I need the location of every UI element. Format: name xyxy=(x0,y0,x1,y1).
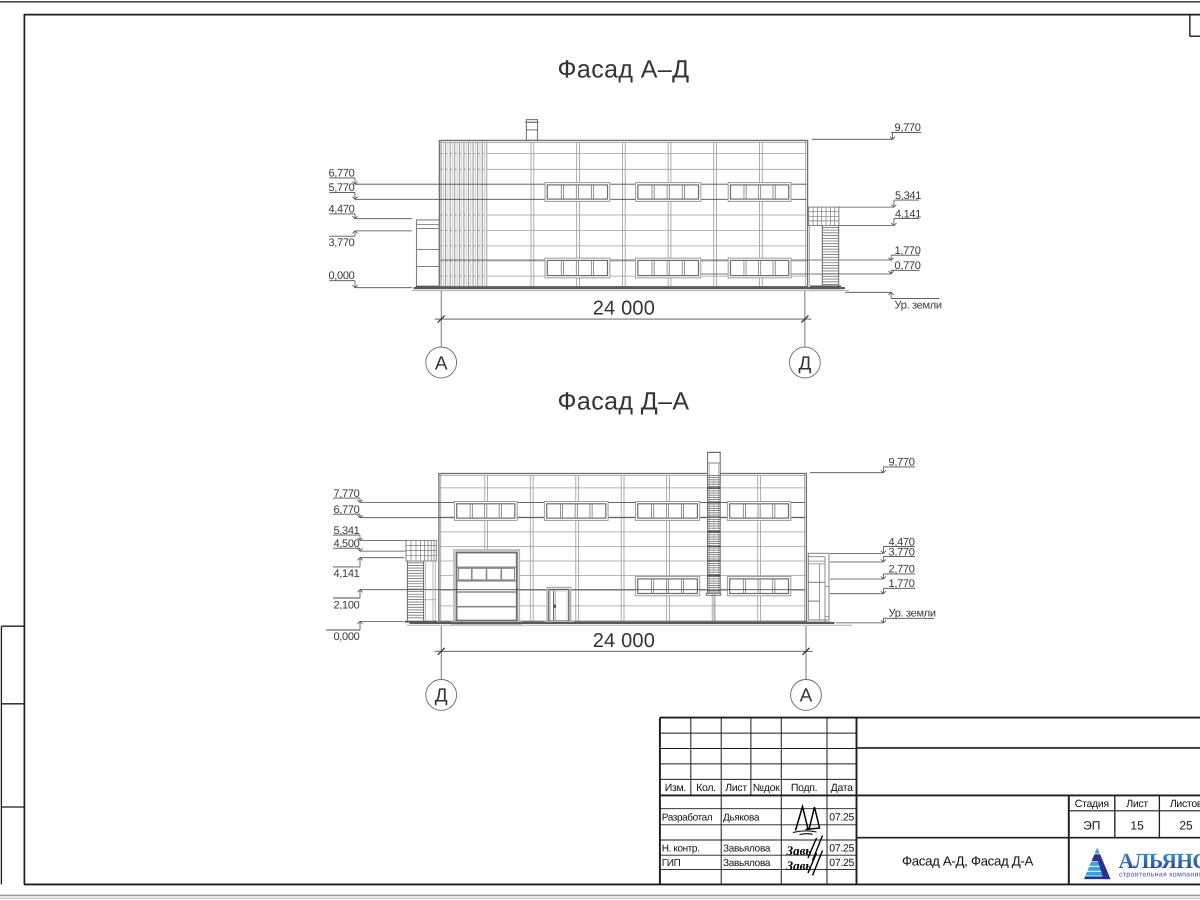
svg-text:07.25: 07.25 xyxy=(829,812,854,824)
svg-text:0,000: 0,000 xyxy=(333,631,359,643)
svg-text:Фасад А–Д: Фасад А–Д xyxy=(558,55,690,83)
svg-text:строительная компания: строительная компания xyxy=(1119,871,1200,878)
svg-text:А: А xyxy=(800,686,813,707)
svg-text:ЭП: ЭП xyxy=(1083,818,1100,832)
svg-text:24 000: 24 000 xyxy=(593,298,655,320)
svg-text:Ур. земли: Ур. земли xyxy=(895,300,942,312)
svg-text:Завьялова: Завьялова xyxy=(723,858,771,869)
svg-text:Лист: Лист xyxy=(725,782,747,794)
svg-text:Подп.: Подп. xyxy=(791,782,817,794)
svg-text:Завьялова: Завьялова xyxy=(723,843,771,854)
svg-text:2,100: 2,100 xyxy=(333,599,359,611)
svg-text:Д: Д xyxy=(798,353,811,374)
svg-text:Д: Д xyxy=(435,686,448,707)
svg-text:Ур. земли: Ур. земли xyxy=(889,608,936,620)
svg-text:Фасад Д–А: Фасад Д–А xyxy=(558,387,690,415)
svg-text:Лист: Лист xyxy=(1126,798,1148,810)
svg-text:№док: №док xyxy=(753,782,780,794)
svg-text:07.25: 07.25 xyxy=(829,842,854,854)
svg-text:АЛЬЯНС: АЛЬЯНС xyxy=(1119,849,1200,873)
svg-text:Дьякова: Дьякова xyxy=(723,813,760,824)
svg-text:25: 25 xyxy=(1179,818,1193,832)
svg-text:А: А xyxy=(435,353,448,374)
svg-text:15: 15 xyxy=(1130,818,1144,832)
svg-text:4,141: 4,141 xyxy=(333,568,359,580)
svg-text:Листов: Листов xyxy=(1170,798,1200,810)
svg-text:Завь: Завь xyxy=(786,858,812,873)
svg-text:Стадия: Стадия xyxy=(1075,798,1109,810)
svg-text:Завь: Завь xyxy=(786,843,812,858)
svg-text:Изм.: Изм. xyxy=(665,782,686,794)
svg-text:24 000: 24 000 xyxy=(593,630,655,652)
svg-text:3,770: 3,770 xyxy=(328,237,354,249)
svg-text:Разработал: Разработал xyxy=(662,813,713,824)
svg-text:Н. контр.: Н. контр. xyxy=(662,843,700,854)
svg-text:07.25: 07.25 xyxy=(829,857,854,869)
svg-text:ГИП: ГИП xyxy=(662,858,681,869)
svg-text:Кол.: Кол. xyxy=(696,782,716,794)
svg-text:Дата: Дата xyxy=(831,782,854,794)
svg-text:Фасад А-Д, Фасад Д-А: Фасад А-Д, Фасад Д-А xyxy=(902,854,1033,869)
